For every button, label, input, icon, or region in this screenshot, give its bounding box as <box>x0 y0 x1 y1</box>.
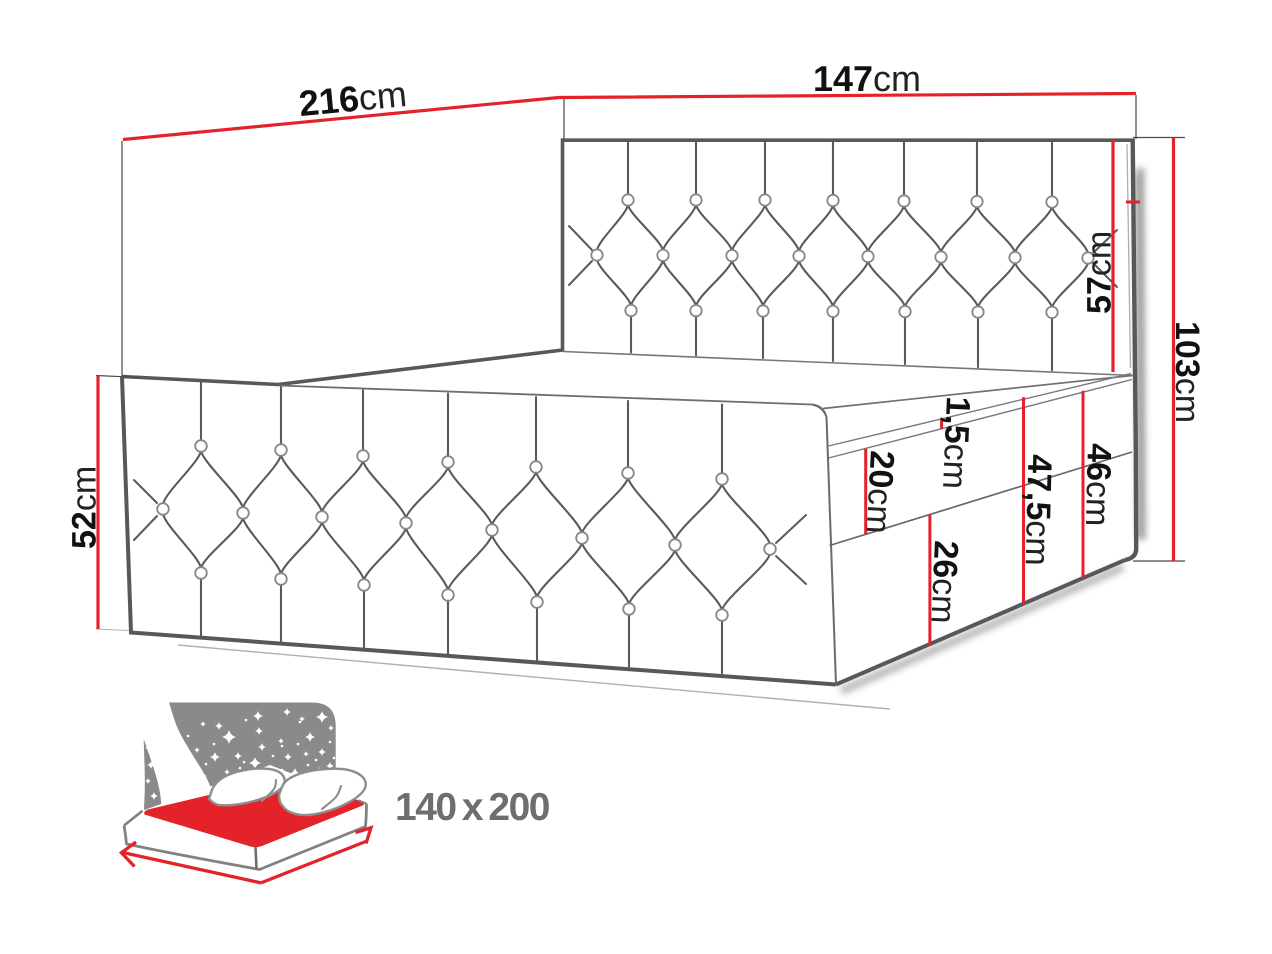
svg-text:46cm: 46cm <box>1078 443 1118 527</box>
svg-text:57cm: 57cm <box>1081 231 1119 314</box>
svg-text:140 x 200: 140 x 200 <box>395 786 550 829</box>
svg-text:52cm: 52cm <box>66 466 104 549</box>
svg-text:103cm: 103cm <box>1168 321 1206 423</box>
svg-text:20cm: 20cm <box>859 450 901 535</box>
svg-text:147cm: 147cm <box>813 58 921 99</box>
svg-text:1,5cm: 1,5cm <box>935 396 977 490</box>
svg-text:26cm: 26cm <box>923 540 965 625</box>
svg-text:47,5cm: 47,5cm <box>1018 454 1059 566</box>
